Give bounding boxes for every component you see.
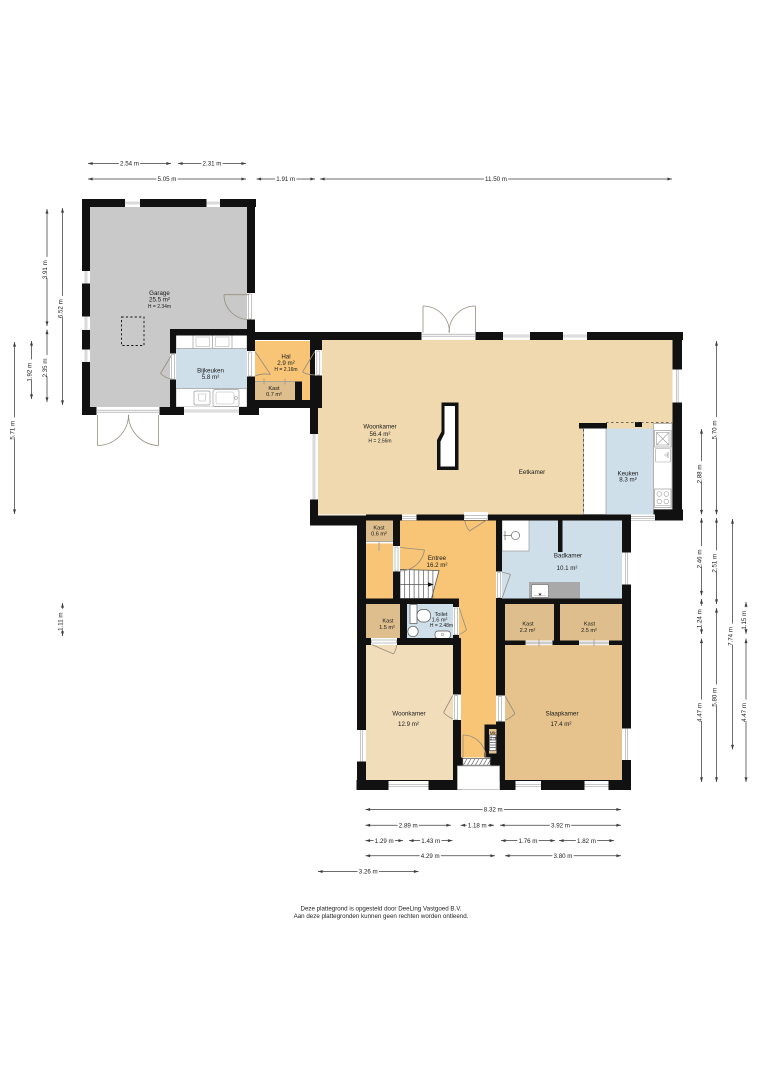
svg-text:Badkamer: Badkamer [554,553,582,560]
svg-text:0.6 m²: 0.6 m² [371,532,387,538]
svg-text:3.92 m: 3.92 m [551,822,570,829]
svg-text:Slaapkamer: Slaapkamer [545,710,578,717]
svg-text:1.11 m: 1.11 m [58,612,65,630]
svg-text:12.9 m²: 12.9 m² [398,721,419,728]
svg-text:8.32 m: 8.32 m [484,807,503,814]
svg-text:0.7 m²: 0.7 m² [266,392,282,398]
svg-text:1.15 m: 1.15 m [741,611,748,630]
svg-text:3.26 m: 3.26 m [359,869,378,876]
svg-text:1.43 m: 1.43 m [421,838,440,845]
svg-text:2.51 m: 2.51 m [712,554,719,573]
svg-text:Entree: Entree [428,555,447,562]
svg-text:4.29 m: 4.29 m [421,853,440,860]
svg-text:1.82 m: 1.82 m [577,838,596,845]
svg-text:2.46 m: 2.46 m [697,549,704,568]
svg-text:1.76 m: 1.76 m [519,838,538,845]
svg-text:H = 2.16m: H = 2.16m [274,367,297,373]
svg-text:2.88 m: 2.88 m [697,464,704,483]
svg-text:Kast: Kast [522,622,534,628]
svg-text:2.54 m: 2.54 m [120,161,139,168]
svg-text:1.5 m²: 1.5 m² [379,625,395,631]
svg-text:56.4 m²: 56.4 m² [370,431,391,438]
svg-text:1.18 m: 1.18 m [468,822,487,829]
svg-text:Kast: Kast [584,622,596,628]
svg-text:3.91 m: 3.91 m [42,260,49,279]
svg-text:2.89 m: 2.89 m [399,822,418,829]
svg-text:5.71 m: 5.71 m [10,421,17,440]
svg-text:5.8 m²: 5.8 m² [202,374,220,381]
svg-text:11.50 m: 11.50 m [485,176,507,183]
svg-text:Eetkamer: Eetkamer [519,469,545,476]
svg-text:2.2 m²: 2.2 m² [520,628,536,634]
svg-text:Woonkamer: Woonkamer [363,423,396,430]
svg-text:1.91 m: 1.91 m [276,176,295,183]
svg-text:16.2 m²: 16.2 m² [427,562,448,569]
svg-text:3.80 m: 3.80 m [554,853,573,860]
svg-text:6.52 m: 6.52 m [58,299,65,318]
svg-text:25.5 m²: 25.5 m² [149,297,170,304]
svg-text:2.31 m: 2.31 m [203,161,222,168]
svg-text:1.92 m: 1.92 m [27,363,34,382]
svg-text:Woonkamer: Woonkamer [392,710,425,717]
svg-text:Kast: Kast [382,619,394,625]
svg-text:5.05 m: 5.05 m [158,176,177,183]
svg-text:2.9 m²: 2.9 m² [277,360,295,367]
svg-text:4.47 m: 4.47 m [697,703,704,722]
svg-text:1.24 m: 1.24 m [697,609,704,628]
svg-text:Deze plattegrond is opgesteld: Deze plattegrond is opgesteld door DeeLi… [301,905,462,912]
svg-text:2.35 m: 2.35 m [42,358,49,377]
svg-text:10.1 m²: 10.1 m² [557,565,578,572]
svg-text:7.74 m: 7.74 m [728,627,735,646]
svg-text:H = 2.56m: H = 2.56m [368,438,391,444]
svg-text:5.80 m: 5.80 m [712,688,719,707]
svg-text:5.70 m: 5.70 m [712,420,719,439]
svg-text:1.29 m: 1.29 m [375,838,394,845]
svg-text:8.3 m²: 8.3 m² [619,477,637,484]
svg-text:H = 2.34m: H = 2.34m [148,304,171,310]
svg-text:Aan deze plattegronden kunnen: Aan deze plattegronden kunnen geen recht… [294,913,469,920]
svg-text:17.4 m²: 17.4 m² [551,721,572,728]
svg-text:4.47 m: 4.47 m [741,703,748,722]
svg-text:H = 2.48m: H = 2.48m [430,623,453,629]
svg-text:0.2 m²: 0.2 m² [487,735,499,740]
svg-text:2.5 m²: 2.5 m² [581,628,597,634]
